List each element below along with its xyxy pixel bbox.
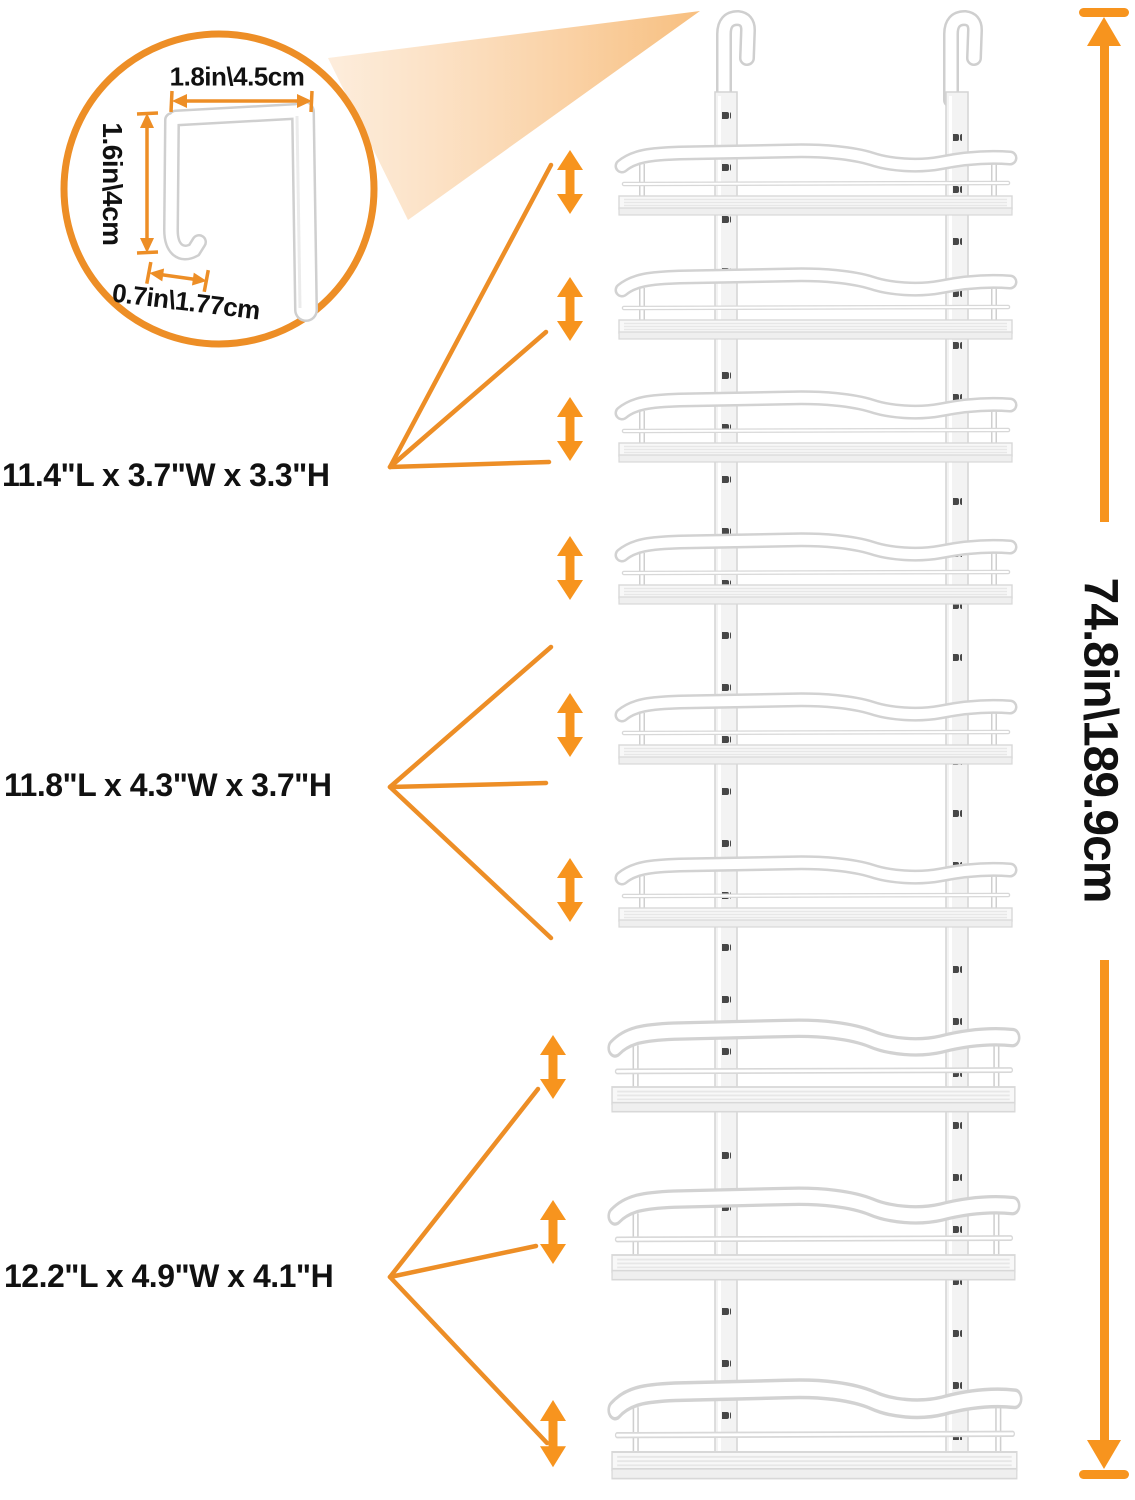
rack-left-door-hook-icon <box>724 18 748 100</box>
basket-tier-1 <box>619 151 1012 215</box>
basket-tier-8 <box>612 1196 1015 1279</box>
basket-tier-5 <box>619 700 1012 764</box>
product-dimension-illustration: 1.8in\4.5cm 1.6in\4cm 0.7in\1.77cm 11.4"… <box>0 0 1135 1500</box>
basket-tier-4 <box>619 540 1012 604</box>
basket-tier-6 <box>619 863 1012 927</box>
adjust-arrow-icon-9 <box>540 1400 566 1467</box>
middle-tier-size-label: 11.8"L x 4.3"W x 3.7"H <box>4 767 331 804</box>
basket-tier-9 <box>612 1389 1017 1479</box>
adjust-arrow-icon-3 <box>557 397 583 461</box>
bottom-tier-size-label: 12.2"L x 4.9"W x 4.1"H <box>4 1258 333 1295</box>
callout-lines-bottom-tier <box>390 1089 547 1443</box>
basket-tier-3 <box>619 398 1012 462</box>
adjust-arrow-icon-7 <box>540 1035 566 1099</box>
adjust-arrow-icon-4 <box>557 536 583 600</box>
callout-lines-middle-tier <box>390 647 551 938</box>
adjust-arrow-icon-5 <box>557 693 583 757</box>
hook-height-label: 1.6in\4cm <box>96 122 128 245</box>
over-door-rack <box>612 18 1017 1479</box>
hook-width-label: 1.8in\4.5cm <box>170 62 305 93</box>
top-tier-size-label: 11.4"L x 3.7"W x 3.3"H <box>2 457 329 494</box>
adjust-arrow-icon-8 <box>540 1200 566 1264</box>
rack-right-door-hook-icon <box>951 18 975 100</box>
adjust-arrow-icon-6 <box>557 858 583 922</box>
basket-tier-7 <box>612 1028 1015 1111</box>
adjust-arrow-icon-2 <box>557 277 583 341</box>
basket-tier-2 <box>619 275 1012 339</box>
adjust-arrows <box>540 150 583 1467</box>
overall-height-label: 74.8in\189.9cm <box>1073 578 1128 903</box>
adjust-arrow-icon-1 <box>557 150 583 214</box>
